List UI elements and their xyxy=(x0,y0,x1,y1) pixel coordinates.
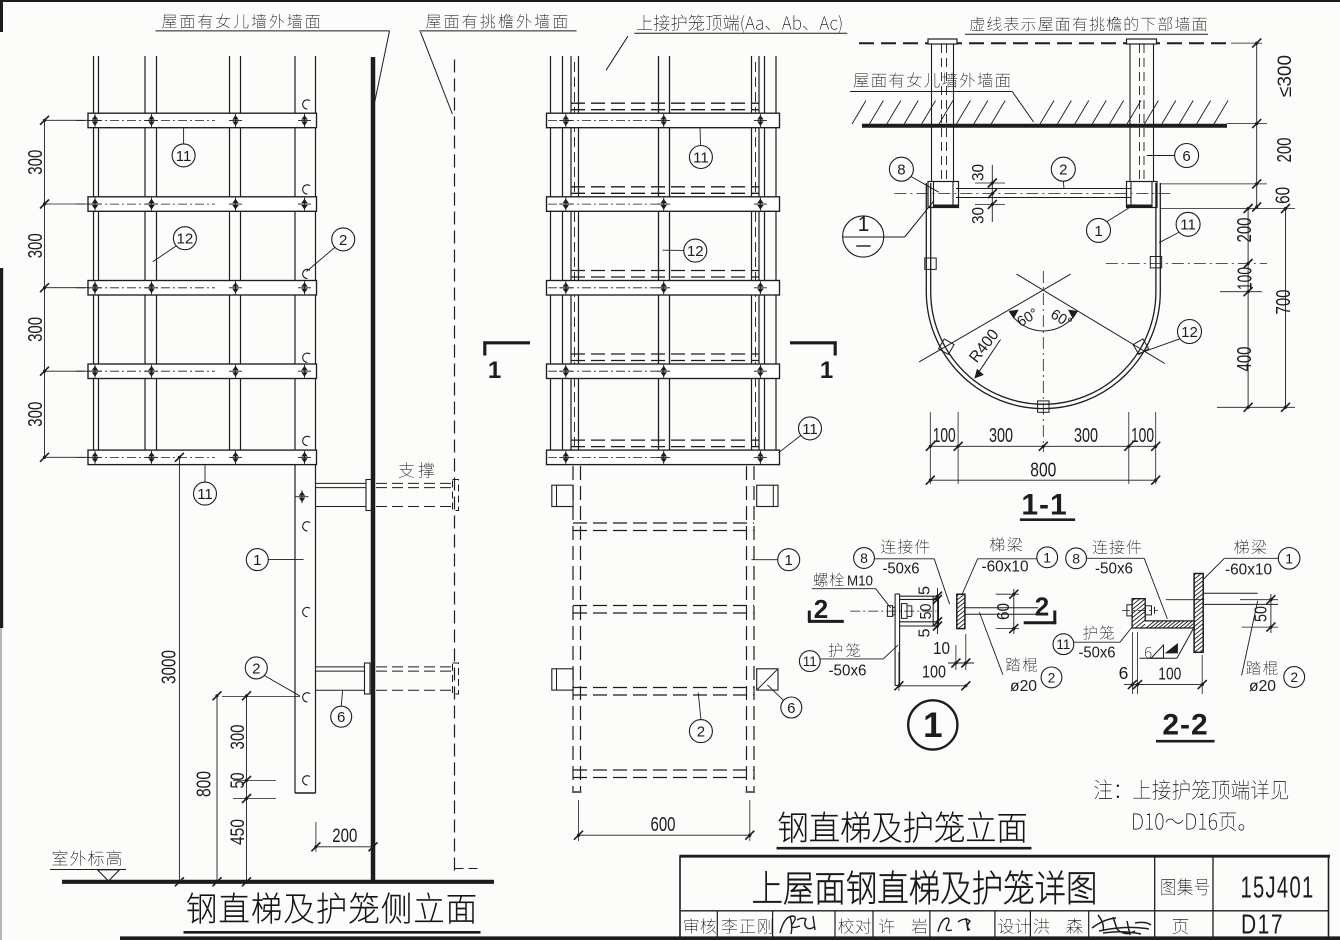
svg-text:ø20: ø20 xyxy=(1249,678,1276,695)
svg-text:200: 200 xyxy=(332,826,357,847)
svg-text:2: 2 xyxy=(814,594,828,624)
svg-text:1-1: 1-1 xyxy=(1021,489,1067,522)
svg-text:1: 1 xyxy=(1285,550,1293,566)
svg-text:11: 11 xyxy=(1056,637,1070,652)
svg-text:300: 300 xyxy=(1074,425,1098,447)
svg-text:ø20: ø20 xyxy=(1010,678,1037,695)
svg-text:100: 100 xyxy=(933,425,956,447)
svg-text:800: 800 xyxy=(1030,460,1056,482)
svg-text:60: 60 xyxy=(993,603,1013,620)
svg-text:200: 200 xyxy=(1274,138,1296,163)
svg-text:600: 600 xyxy=(651,814,676,836)
svg-text:1: 1 xyxy=(923,706,942,745)
svg-text:-50x6: -50x6 xyxy=(829,663,867,680)
svg-text:12: 12 xyxy=(1181,324,1198,341)
svg-text:2: 2 xyxy=(339,232,347,249)
svg-text:6: 6 xyxy=(337,709,345,726)
svg-text:-50x6: -50x6 xyxy=(1095,561,1133,578)
svg-text:5: 5 xyxy=(917,628,934,637)
svg-text:2-2: 2-2 xyxy=(1162,709,1208,742)
svg-text:10: 10 xyxy=(933,638,950,658)
svg-text:1: 1 xyxy=(785,552,793,569)
svg-text:1: 1 xyxy=(253,552,261,569)
svg-text:30: 30 xyxy=(969,164,988,181)
svg-text:200: 200 xyxy=(1234,218,1256,243)
svg-text:2: 2 xyxy=(1035,592,1049,622)
svg-text:2: 2 xyxy=(252,660,260,677)
svg-text:8: 8 xyxy=(1072,550,1080,566)
svg-text:2: 2 xyxy=(697,724,705,741)
svg-text:11: 11 xyxy=(176,148,192,165)
svg-text:400: 400 xyxy=(1234,347,1256,372)
svg-text:8: 8 xyxy=(860,550,868,566)
svg-text:300: 300 xyxy=(25,233,47,258)
svg-text:-50x6: -50x6 xyxy=(883,561,920,578)
svg-text:50: 50 xyxy=(918,603,935,619)
svg-text:1: 1 xyxy=(1094,223,1102,240)
svg-text:60: 60 xyxy=(1273,187,1295,204)
svg-text:700: 700 xyxy=(1273,290,1295,315)
svg-text:-50x6: -50x6 xyxy=(1079,645,1116,662)
svg-text:15J401: 15J401 xyxy=(1241,870,1315,905)
svg-text:30: 30 xyxy=(969,207,988,224)
svg-text:800: 800 xyxy=(194,771,216,797)
svg-text:12: 12 xyxy=(687,243,704,260)
svg-text:1: 1 xyxy=(1043,549,1051,565)
svg-text:100: 100 xyxy=(922,662,946,682)
svg-text:300: 300 xyxy=(228,725,249,750)
svg-text:11: 11 xyxy=(803,654,817,669)
svg-text:300: 300 xyxy=(25,402,47,427)
svg-text:1: 1 xyxy=(858,213,870,236)
svg-text:1: 1 xyxy=(820,357,833,384)
svg-text:1: 1 xyxy=(488,357,501,384)
svg-text:450: 450 xyxy=(228,819,249,845)
svg-text:5: 5 xyxy=(917,586,934,595)
svg-text:300: 300 xyxy=(25,150,47,175)
svg-text:50: 50 xyxy=(228,773,249,789)
svg-text:6: 6 xyxy=(1182,148,1190,165)
svg-text:6: 6 xyxy=(1119,663,1129,683)
svg-text:D17: D17 xyxy=(1241,909,1284,940)
svg-text:-60x10: -60x10 xyxy=(1225,562,1272,579)
svg-text:8: 8 xyxy=(897,162,905,179)
svg-text:100: 100 xyxy=(1158,664,1181,684)
svg-text:≤300: ≤300 xyxy=(1275,55,1296,97)
svg-text:6: 6 xyxy=(787,700,795,717)
svg-text:300: 300 xyxy=(989,425,1013,447)
svg-text:11: 11 xyxy=(197,486,213,503)
svg-text:100: 100 xyxy=(1131,425,1154,447)
svg-text:11: 11 xyxy=(1180,217,1196,234)
svg-text:11: 11 xyxy=(693,149,709,166)
svg-text:300: 300 xyxy=(25,317,47,342)
svg-text:3000: 3000 xyxy=(159,650,181,684)
svg-text:M10: M10 xyxy=(847,573,873,590)
svg-text:100: 100 xyxy=(1235,267,1257,290)
svg-text:2: 2 xyxy=(1290,670,1298,685)
svg-text:2: 2 xyxy=(1059,162,1067,179)
svg-text:2: 2 xyxy=(1048,670,1056,685)
svg-text:11: 11 xyxy=(802,421,818,438)
svg-text:12: 12 xyxy=(177,231,194,248)
svg-text:-60x10: -60x10 xyxy=(982,559,1029,576)
